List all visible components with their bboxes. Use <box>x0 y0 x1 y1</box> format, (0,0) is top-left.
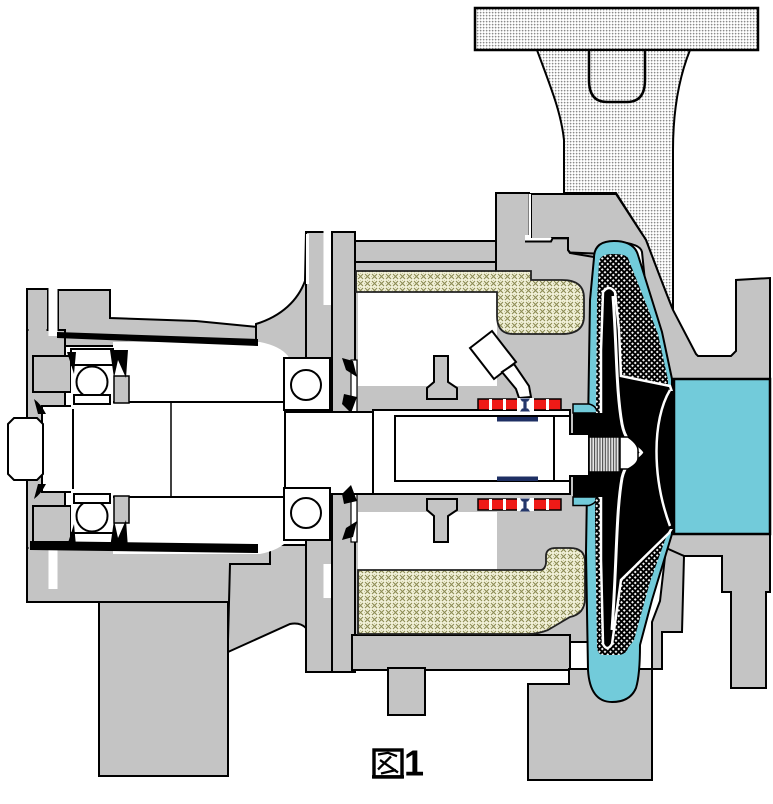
svg-text:1: 1 <box>404 743 424 784</box>
